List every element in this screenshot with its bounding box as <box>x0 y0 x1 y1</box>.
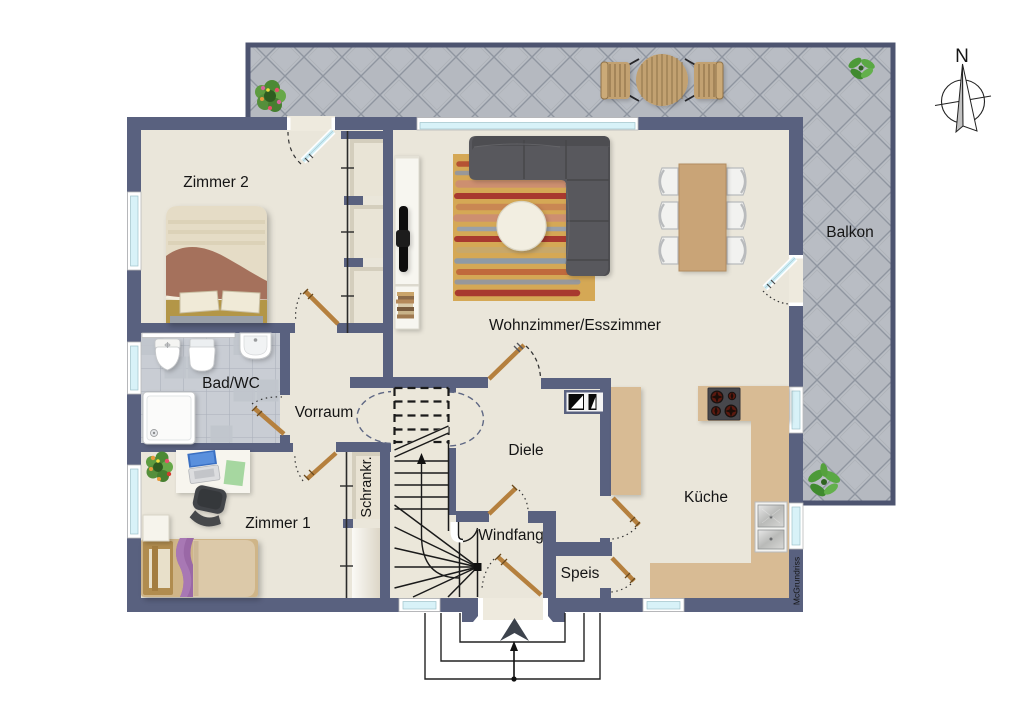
svg-text:Bad/WC: Bad/WC <box>202 375 260 392</box>
svg-text:Küche: Küche <box>684 489 728 506</box>
svg-text:N: N <box>955 46 969 67</box>
svg-text:Wohnzimmer/Esszimmer: Wohnzimmer/Esszimmer <box>489 317 661 334</box>
svg-text:Zimmer 1: Zimmer 1 <box>245 515 310 532</box>
svg-text:Vorraum: Vorraum <box>295 404 354 421</box>
svg-text:Schrankr.: Schrankr. <box>359 456 375 517</box>
svg-text:McGrundriss: McGrundriss <box>792 557 802 605</box>
svg-text:Diele: Diele <box>508 442 543 459</box>
svg-text:Speis: Speis <box>561 565 600 582</box>
svg-text:Balkon: Balkon <box>826 224 873 241</box>
svg-text:Windfang: Windfang <box>478 527 543 544</box>
svg-text:Zimmer 2: Zimmer 2 <box>183 174 248 191</box>
